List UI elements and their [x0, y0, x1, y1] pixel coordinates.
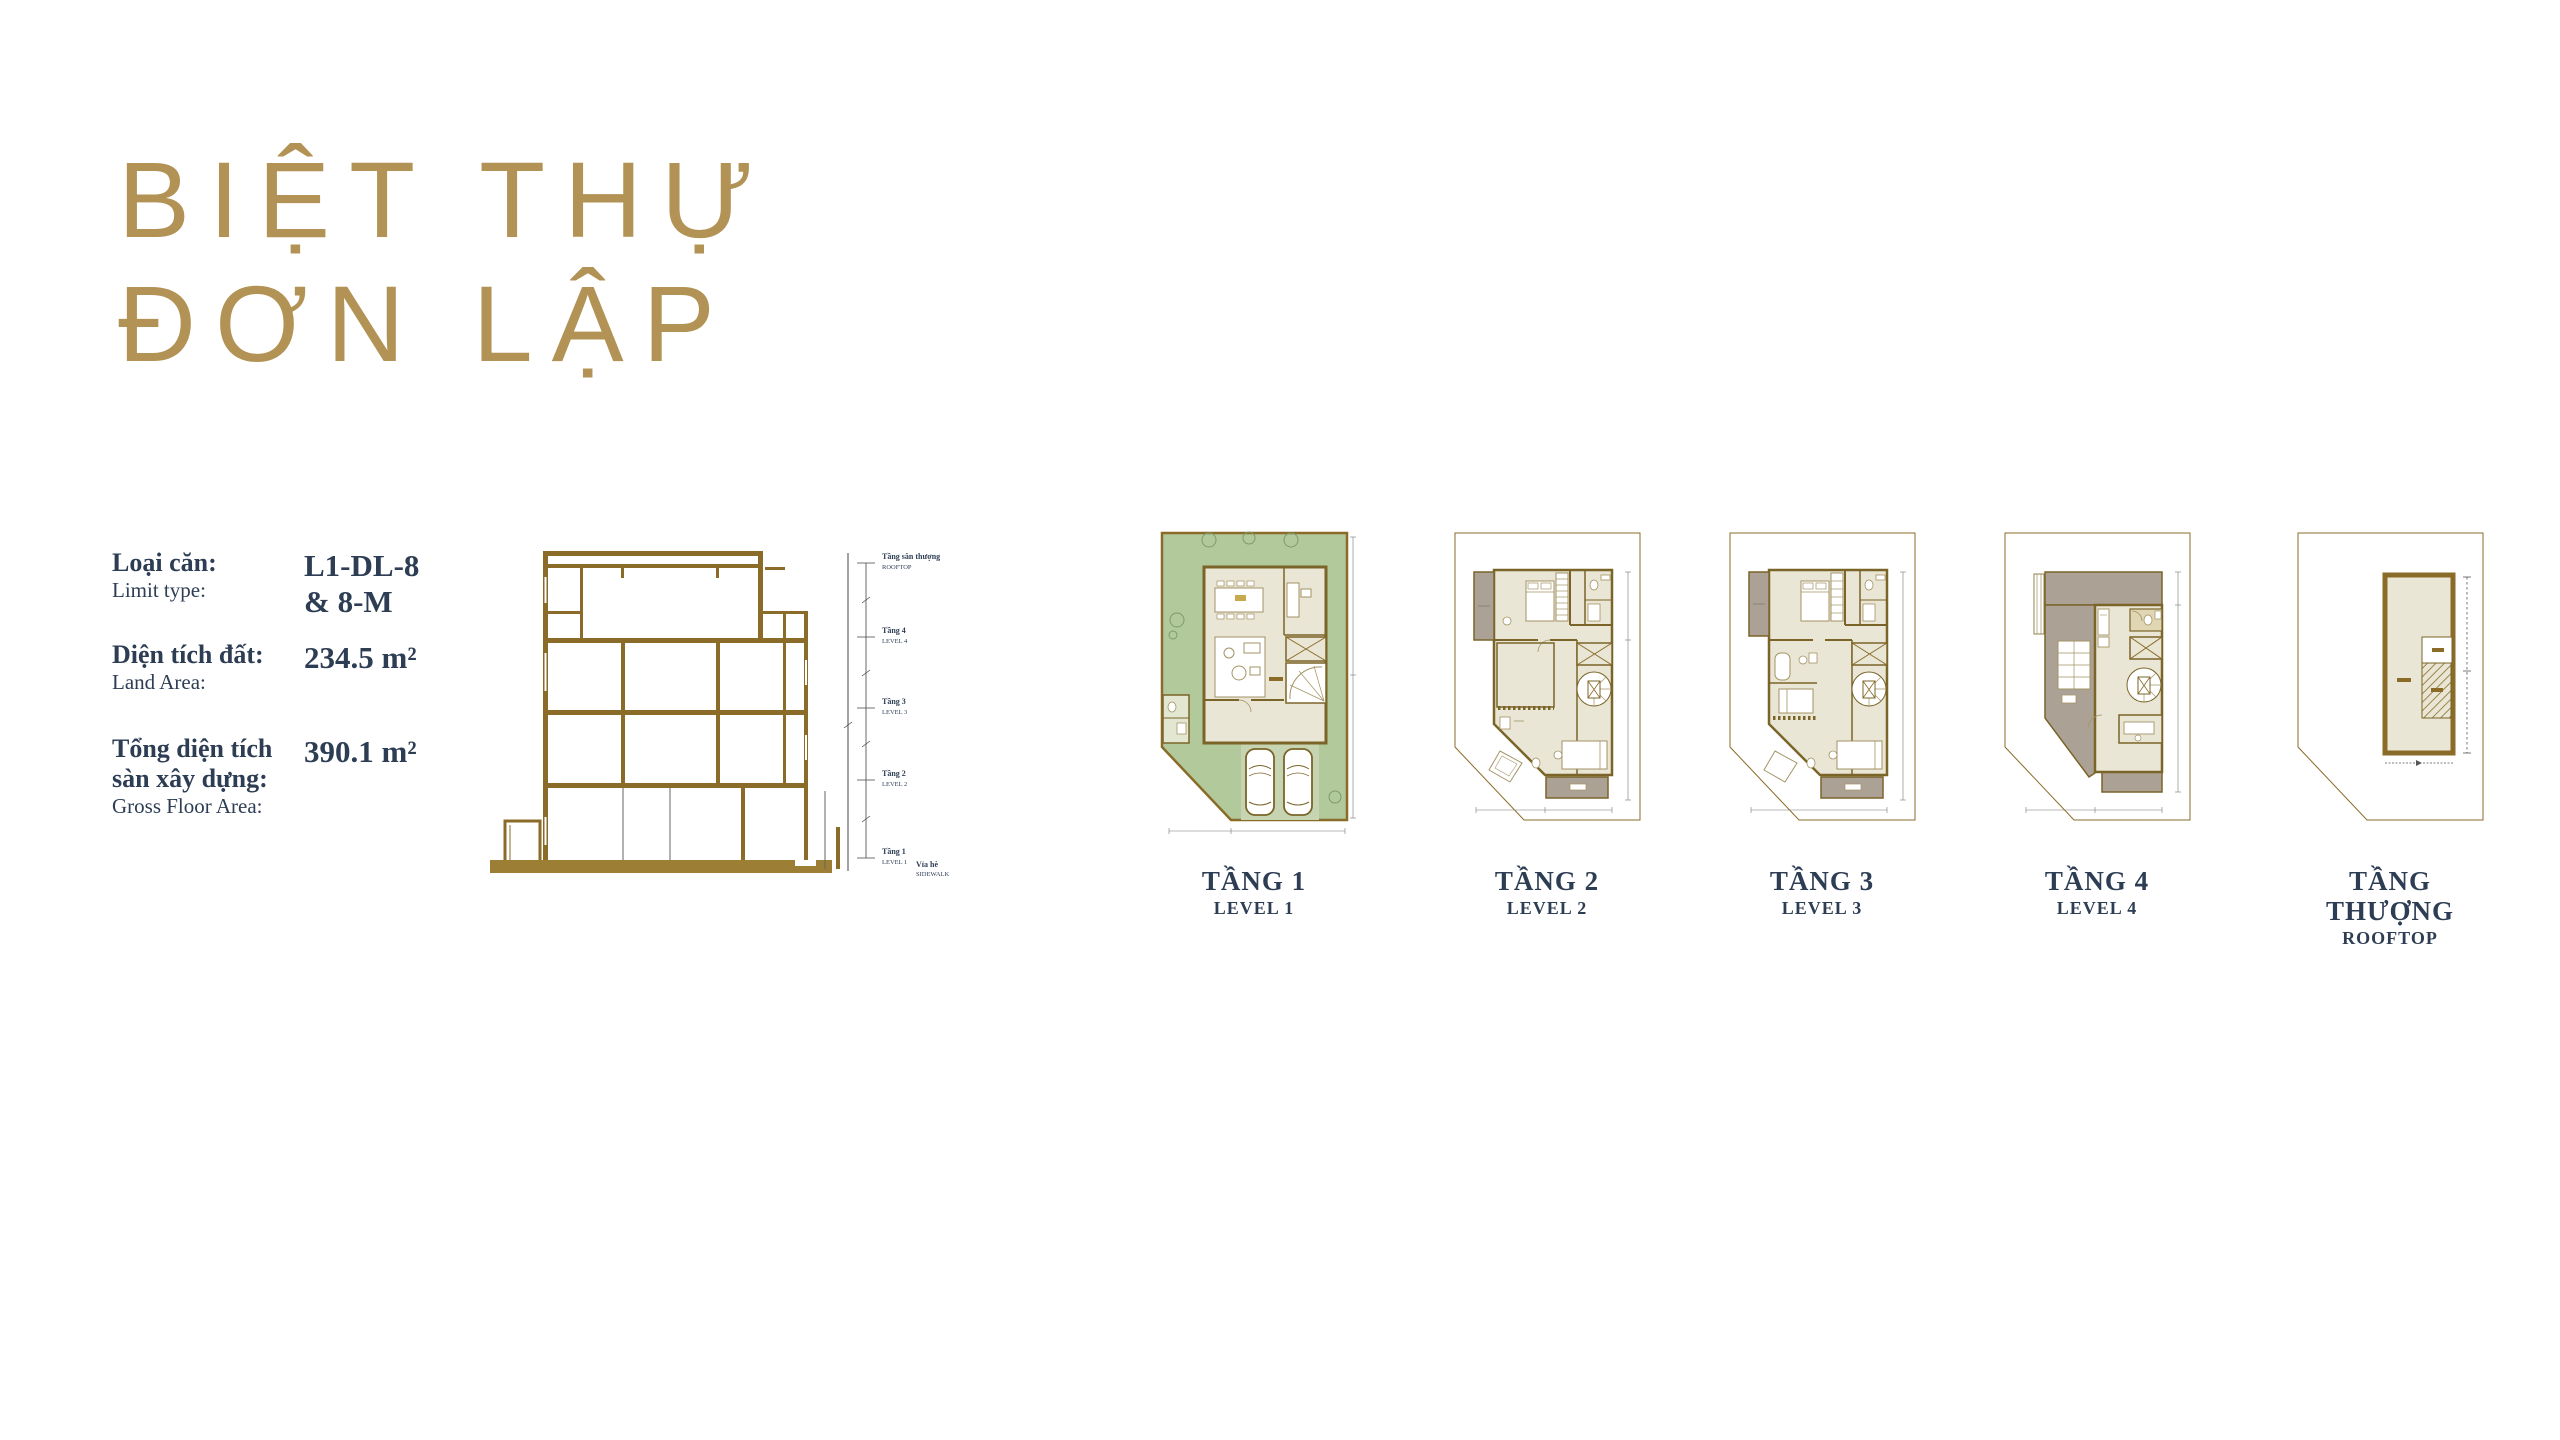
- land-area-value: 234.5 m²: [304, 640, 417, 694]
- chair: [1503, 617, 1511, 625]
- floorplan-level-4: TẦNG 4 LEVEL 4: [1991, 525, 2203, 918]
- unit-type-label-en: Limit type:: [112, 578, 304, 602]
- floorplan-level-1-drawing: [1149, 525, 1359, 840]
- section-level-4-vi: Tầng 4: [882, 626, 906, 635]
- kitchen: [2098, 609, 2109, 647]
- ground-bar: [490, 860, 832, 873]
- land-area-label-en: Land Area:: [112, 670, 304, 694]
- plan-label-level-2-en: LEVEL 2: [1441, 898, 1653, 918]
- wardrobe: [1556, 573, 1568, 621]
- plan-label-level-3-vi: TẦNG 3: [1716, 866, 1928, 896]
- section-level-2-vi: Tầng 2: [882, 769, 906, 778]
- plan-label-rooftop-vi: TẦNG THƯỢNG: [2284, 866, 2496, 926]
- bed: [1554, 741, 1607, 769]
- plan-label-level-4-vi: TẦNG 4: [1991, 866, 2203, 896]
- section-level-1-vi: Tầng 1: [882, 847, 906, 856]
- page-title-line1: BIỆT THỰ: [118, 138, 772, 262]
- spec-unit-type: Loại căn: Limit type: L1-DL-8 & 8-M: [112, 548, 419, 620]
- floorplan-rooftop-drawing: [2285, 525, 2495, 840]
- car: [1246, 749, 1274, 815]
- section-elevation-svg: Tầng sân thượng ROOFTOP Tầng 4 LEVEL 4 T…: [480, 525, 1080, 905]
- floorplan-level-1: TẦNG 1 LEVEL 1: [1148, 525, 1360, 918]
- section-level-1-en: LEVEL 1: [882, 859, 907, 866]
- unit-type-value-line1: L1-DL-8: [304, 548, 419, 584]
- bed: [1801, 581, 1829, 621]
- car: [1284, 749, 1312, 815]
- page-title: BIỆT THỰ ĐƠN LẬP: [118, 138, 772, 386]
- bed: [1829, 741, 1882, 769]
- spec-land-area: Diện tích đất: Land Area: 234.5 m²: [112, 640, 417, 694]
- section-level-2-en: LEVEL 2: [882, 781, 907, 788]
- wardrobe: [1831, 573, 1843, 621]
- dimension-lines: [844, 553, 875, 871]
- floorplan-level-3-drawing: [1717, 525, 1927, 840]
- railing: [2034, 574, 2044, 634]
- section-level-rooftop-en: ROOFTOP: [882, 564, 912, 571]
- section-sidewalk-vi: Vỉa hè: [916, 860, 938, 869]
- spec-gross-floor-area: Tổng diện tích sàn xây dựng: Gross Floor…: [112, 734, 417, 818]
- section-level-3-vi: Tầng 3: [882, 697, 906, 706]
- floorplan-level-4-drawing: [1992, 525, 2202, 840]
- terrace-bottom: [2102, 772, 2162, 792]
- gfa-label-vi-line2: sàn xây dựng:: [112, 764, 304, 794]
- plan-label-level-4-en: LEVEL 4: [1991, 898, 2203, 918]
- bathroom: [1163, 695, 1189, 743]
- floorplan-level-2: TẦNG 2 LEVEL 2: [1441, 525, 1653, 918]
- desk: [1500, 717, 1510, 729]
- brochure-page: BIỆT THỰ ĐƠN LẬP Loại căn: Limit type: L…: [0, 0, 2560, 1440]
- building-section-drawing: Tầng sân thượng ROOFTOP Tầng 4 LEVEL 4 T…: [480, 525, 1080, 905]
- floorplan-rooftop: TẦNG THƯỢNG ROOFTOP: [2284, 525, 2496, 948]
- gfa-label-en: Gross Floor Area:: [112, 794, 304, 818]
- terrace-top: [2045, 572, 2162, 605]
- gfa-value: 390.1 m²: [304, 734, 417, 818]
- bed: [1526, 581, 1554, 621]
- bathroom: [2130, 609, 2162, 631]
- kitchen-counter: [1287, 583, 1299, 617]
- section-sidewalk-en: SIDEWALK: [916, 871, 950, 878]
- land-area-label-vi: Diện tích đất:: [112, 640, 304, 670]
- plan-label-level-1-vi: TẦNG 1: [1148, 866, 1360, 896]
- floorplan-level-2-drawing: [1442, 525, 1652, 840]
- gfa-label-vi-line1: Tổng diện tích: [112, 734, 304, 764]
- unit-type-value-line2: & 8-M: [304, 584, 419, 620]
- plan-label-rooftop-en: ROOFTOP: [2284, 928, 2496, 948]
- study-room: [2119, 715, 2162, 743]
- section-level-rooftop-vi: Tầng sân thượng: [882, 552, 940, 561]
- section-level-4-en: LEVEL 4: [882, 638, 908, 645]
- section-level-3-en: LEVEL 3: [882, 709, 907, 716]
- plan-label-level-1-en: LEVEL 1: [1148, 898, 1360, 918]
- floorplan-level-3: TẦNG 3 LEVEL 3: [1716, 525, 1928, 918]
- plan-label-level-2-vi: TẦNG 2: [1441, 866, 1653, 896]
- bed: [1779, 689, 1813, 713]
- stair-core: [1286, 637, 1326, 703]
- page-title-line2: ĐƠN LẬP: [118, 262, 772, 386]
- plan-label-level-3-en: LEVEL 3: [1716, 898, 1928, 918]
- unit-type-label-vi: Loại căn:: [112, 548, 304, 578]
